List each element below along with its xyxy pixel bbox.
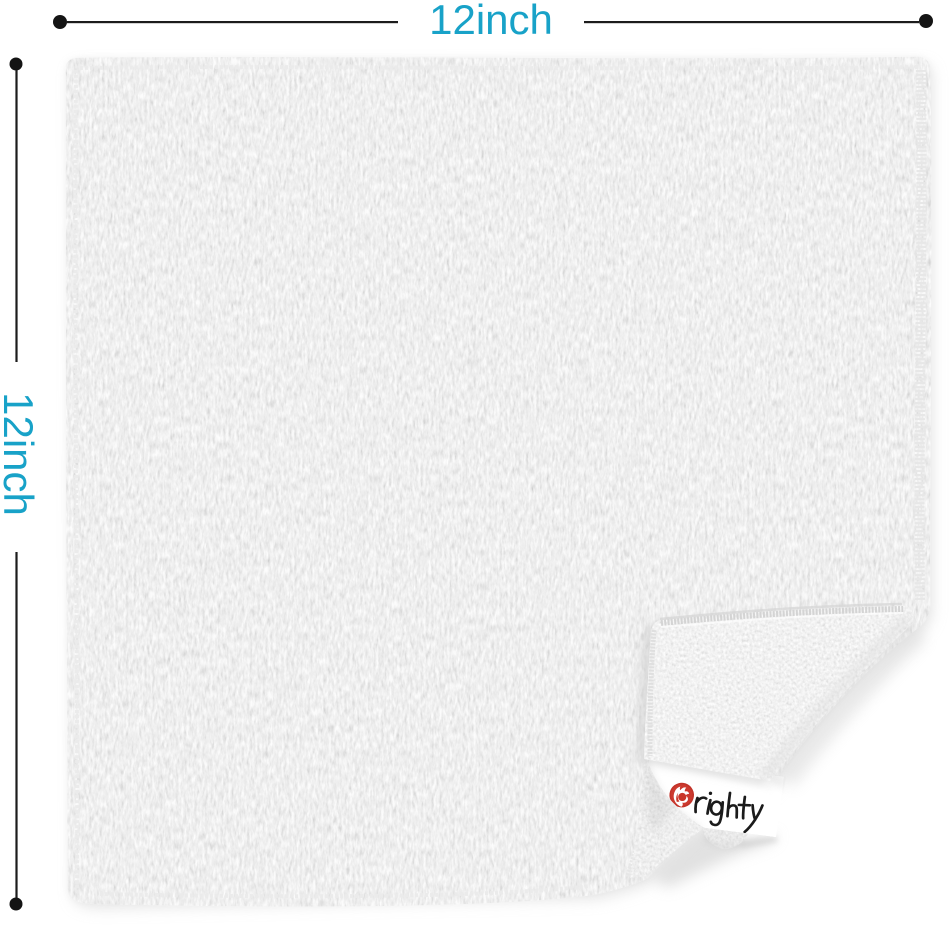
svg-text:12inch: 12inch — [429, 0, 553, 43]
svg-text:12inch: 12inch — [0, 392, 42, 516]
